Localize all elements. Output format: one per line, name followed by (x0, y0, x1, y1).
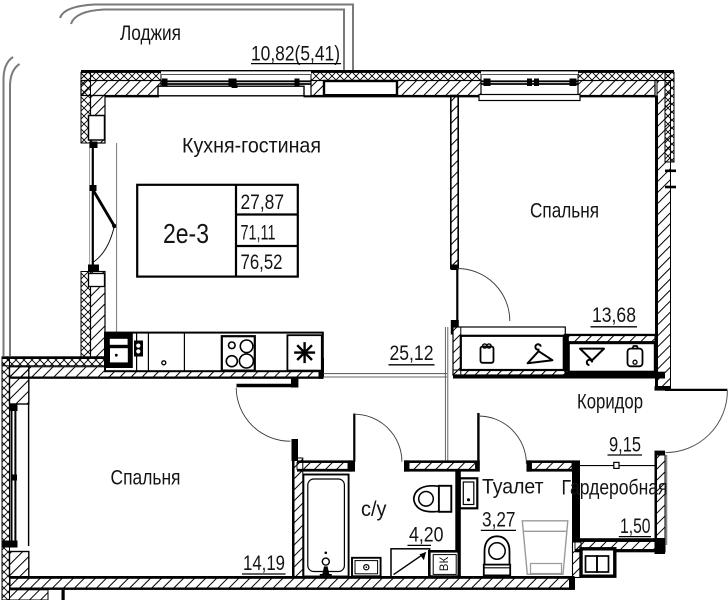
svg-text:Лоджия: Лоджия (120, 21, 181, 45)
svg-text:Спальня: Спальня (530, 200, 599, 223)
svg-text:9,15: 9,15 (609, 434, 641, 457)
svg-text:25,12: 25,12 (390, 342, 434, 365)
svg-text:76,52: 76,52 (241, 251, 283, 274)
svg-text:14,19: 14,19 (243, 552, 285, 575)
svg-text:1,50: 1,50 (620, 515, 651, 538)
svg-text:27,87: 27,87 (241, 191, 285, 214)
svg-text:13,68: 13,68 (592, 304, 636, 327)
svg-text:с/у: с/у (361, 498, 387, 521)
svg-text:Спальня: Спальня (111, 467, 181, 490)
svg-text:Туалет: Туалет (482, 476, 544, 499)
svg-text:Гардеробная: Гардеробная (562, 477, 668, 500)
svg-text:ВК: ВК (439, 557, 451, 572)
svg-text:4,20: 4,20 (409, 524, 444, 547)
svg-text:71,11: 71,11 (241, 222, 276, 245)
svg-text:Кухня-гостиная: Кухня-гостиная (182, 135, 321, 158)
svg-text:Коридор: Коридор (577, 391, 643, 414)
svg-text:10,82(5,41): 10,82(5,41) (251, 43, 340, 66)
svg-text:2е-3: 2е-3 (163, 218, 209, 249)
svg-text:3,27: 3,27 (482, 509, 516, 532)
